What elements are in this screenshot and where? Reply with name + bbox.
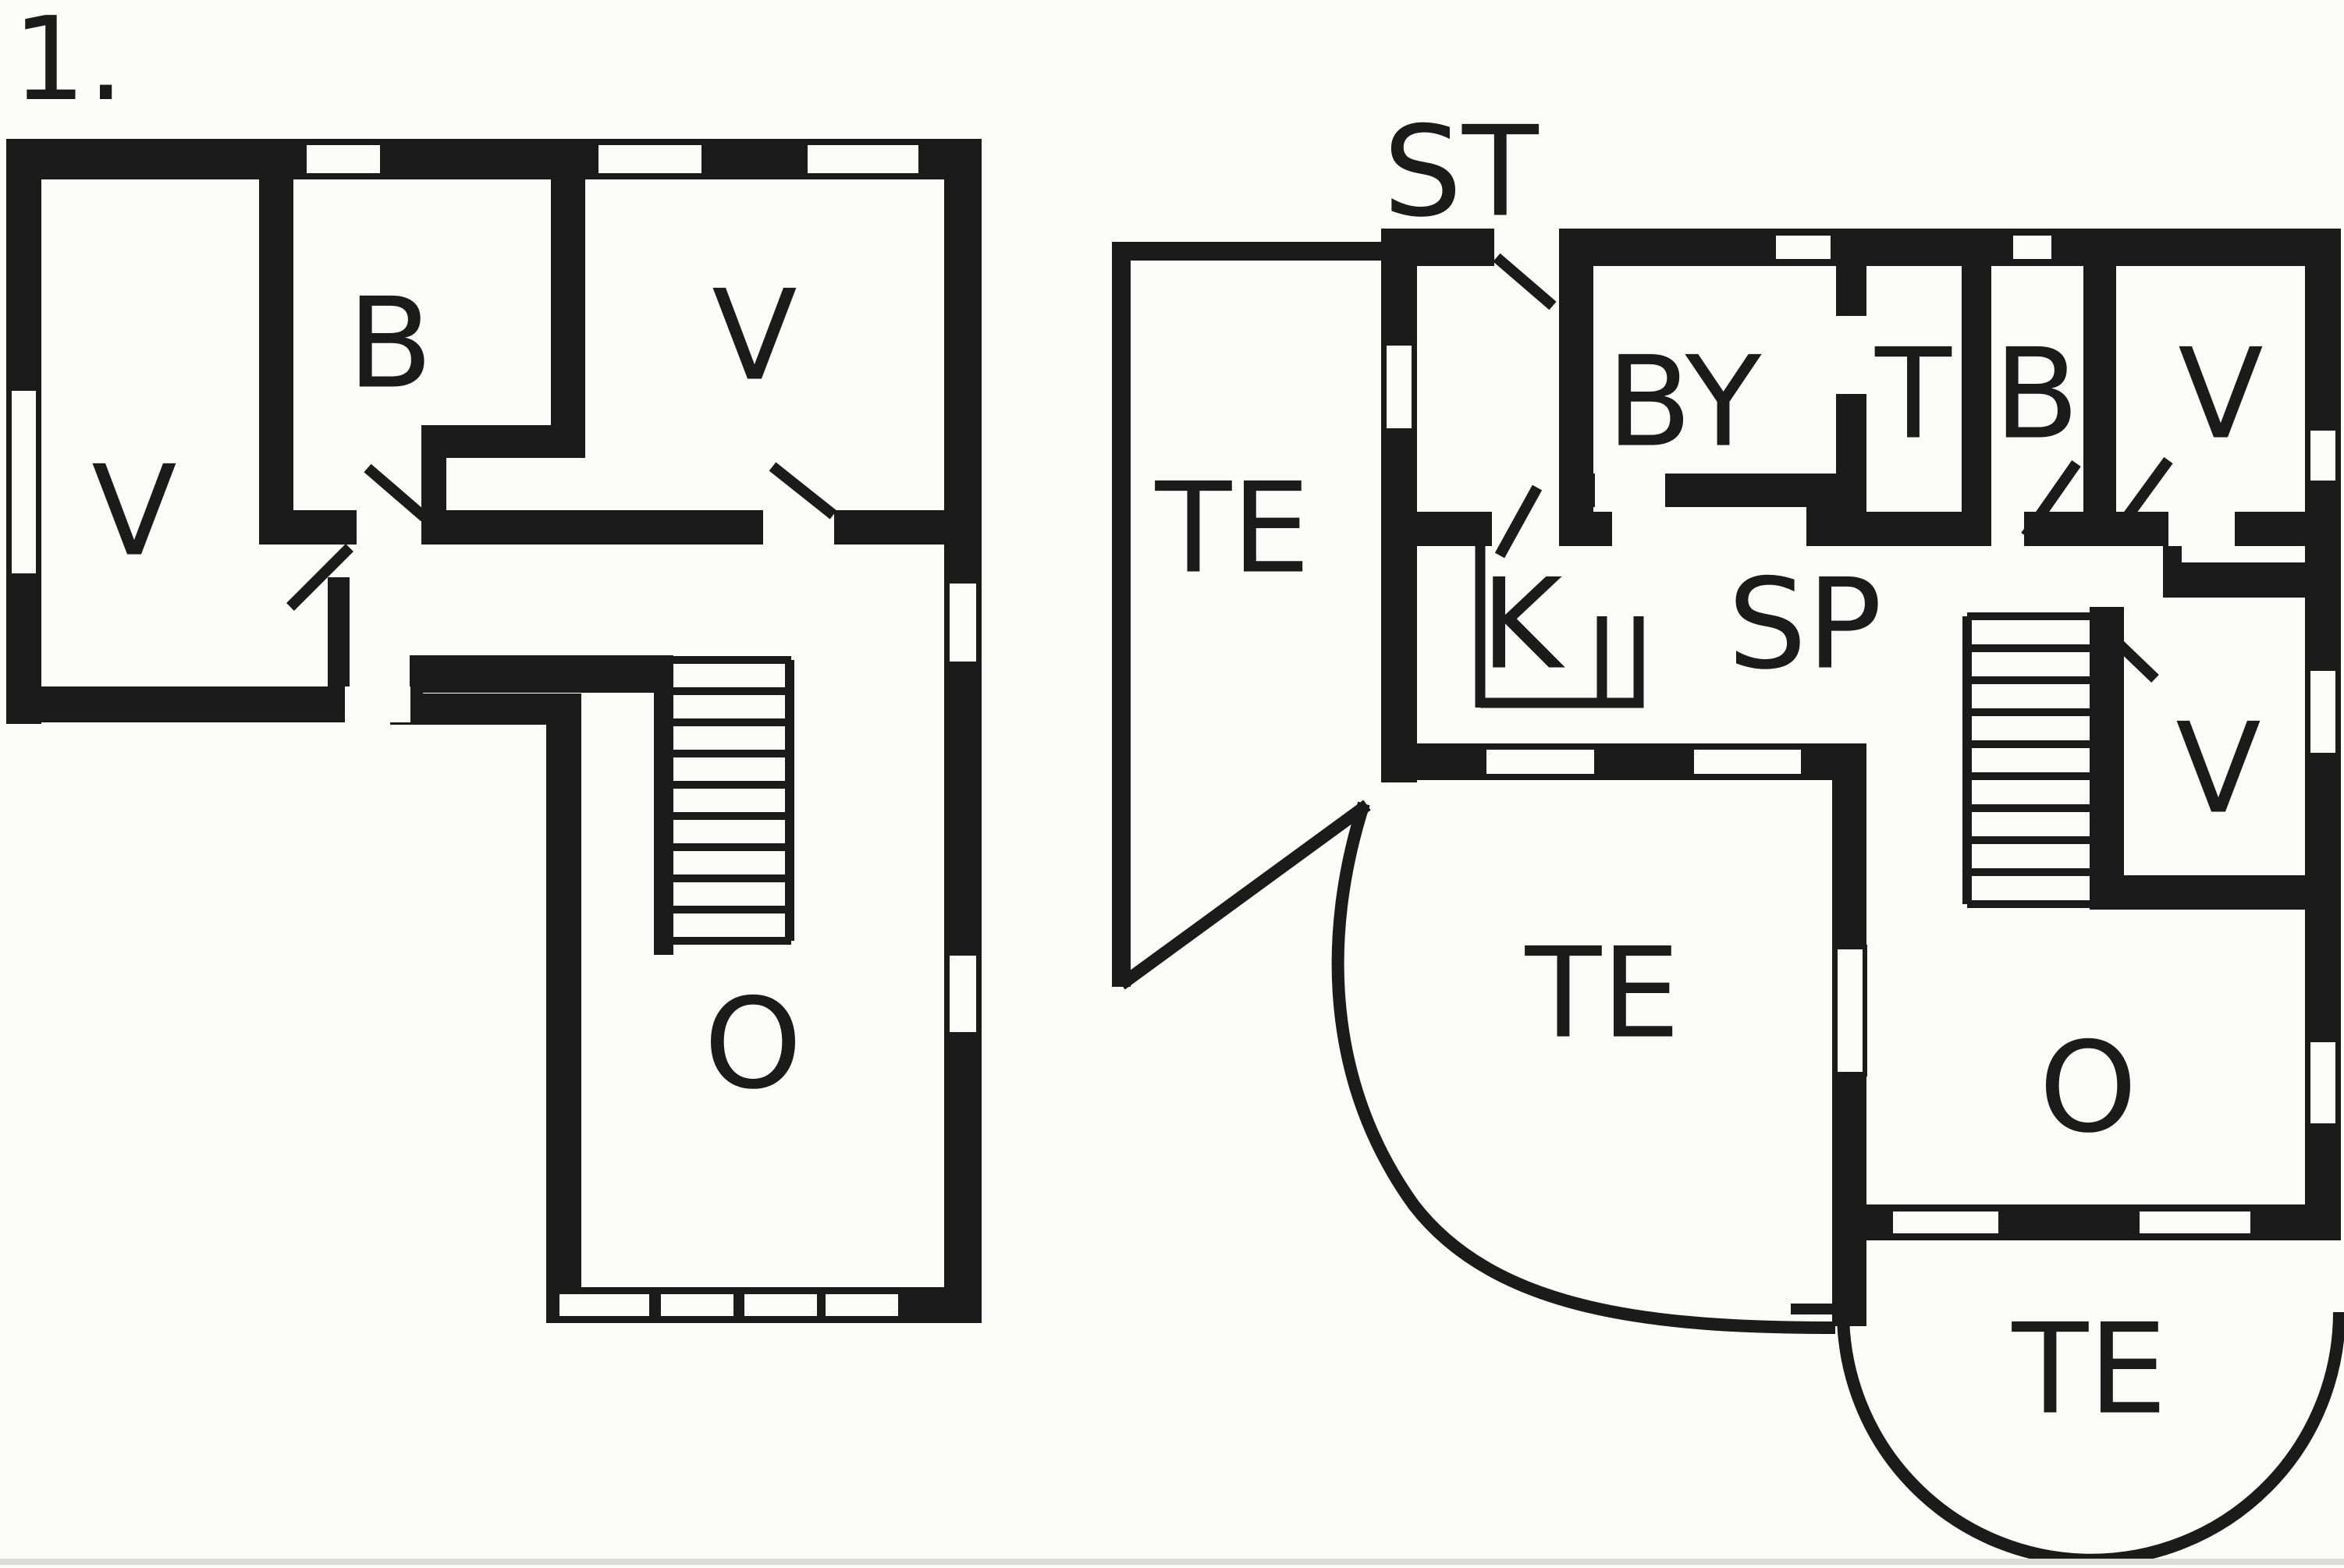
first-floor-plan-room-label-V: V — [91, 438, 176, 584]
first-floor-plan-door-swing — [368, 468, 424, 517]
first-floor-plan-wall — [390, 694, 557, 725]
ground-floor-plan-room-label-V: V — [2178, 321, 2263, 467]
ground-floor-plan-door-opening — [1991, 512, 2024, 546]
first-floor-plan-window — [557, 1292, 652, 1318]
first-floor-plan-window — [947, 581, 978, 664]
ground-floor-plan-window — [1774, 233, 1833, 261]
first-floor-plan-window — [805, 143, 921, 176]
ground-floor-plan-window — [1484, 747, 1596, 776]
ground-floor-plan-thin-wall-line — [1121, 805, 1367, 984]
ground-floor-plan-window — [2137, 1209, 2253, 1236]
ground-floor-plan-room-label-O: O — [2039, 1015, 2137, 1161]
ground-floor-plan-window — [2308, 1040, 2338, 1126]
ground-floor-plan-window — [1384, 343, 1414, 431]
ground-floor-plan-wall — [1962, 266, 1991, 512]
floorplan-drawing: VBVOSTBYTBVTEKSPVTEOTE — [0, 0, 2344, 1565]
ground-floor-plan-room-label-TE: TE — [1525, 921, 1681, 1066]
first-floor-plan-wall — [259, 510, 357, 545]
first-floor-plan-wall — [551, 176, 585, 458]
first-floor-plan-window — [596, 143, 704, 176]
ground-floor-plan-door-opening — [2168, 512, 2235, 546]
ground-floor-plan-room-label-TE: TE — [1155, 456, 1311, 601]
first-floor-plan-wall — [834, 510, 944, 545]
ground-floor-plan-window — [2308, 428, 2338, 483]
first-floor-plan-room-label-O: O — [704, 971, 802, 1117]
ground-floor-plan-door-opening — [1595, 474, 1665, 507]
scan-edge-artifact — [0, 1559, 2344, 1565]
ground-floor-plan-door-swing — [1500, 488, 1537, 555]
ground-floor-plan-wall — [2163, 562, 2305, 598]
ground-floor-plan-wall — [1832, 512, 2341, 546]
ground-floor-plan-room-label-V: V — [2175, 696, 2261, 842]
first-floor-plan-window — [947, 953, 978, 1034]
first-floor-plan-window — [742, 1292, 819, 1318]
first-floor-plan-door-opening — [345, 686, 410, 722]
first-floor-plan-wall — [944, 139, 982, 1323]
first-floor-plan-window — [659, 1292, 736, 1318]
first-floor-plan-door-swing — [772, 466, 833, 515]
first-floor-plan-wall — [410, 655, 673, 693]
ground-floor-plan-room-label-SP: SP — [1728, 552, 1882, 697]
first-floor-plan-wall — [421, 425, 446, 545]
ground-floor-plan-room-label-B: B — [1994, 321, 2079, 467]
ground-floor-plan-window — [1891, 1209, 2001, 1236]
ground-floor-plan-wall — [2090, 875, 2341, 910]
ground-floor-plan-wall — [1381, 229, 1417, 782]
ground-floor-plan-wall — [1559, 266, 1593, 516]
first-floor-plan-wall — [585, 510, 763, 545]
ground-floor-plan-boundary-curve — [1602, 616, 1639, 703]
first-floor-plan-room-label-B: B — [347, 271, 433, 417]
floorplan-canvas: VBVOSTBYTBVTEKSPVTEOTE — [0, 0, 2344, 1565]
first-floor-plan-room-label-V: V — [712, 263, 797, 409]
ground-floor-plan-wall — [2083, 266, 2116, 512]
first-floor-plan-wall — [546, 694, 581, 1323]
ground-floor-plan-window — [1692, 747, 1803, 776]
ground-floor-plan-window — [1835, 947, 1865, 1074]
ground-floor-plan-wall — [1559, 512, 1612, 546]
ground-floor-plan-wall — [2090, 607, 2124, 906]
first-floor-plan-wall — [654, 655, 673, 955]
first-floor-plan-window — [9, 388, 38, 576]
ground-floor-plan-wall — [1381, 512, 1492, 546]
ground-floor-plan-room-label-T: T — [1874, 321, 1952, 467]
ground-floor-plan-room-label-K: K — [1481, 552, 1566, 697]
first-floor-plan-wall — [259, 179, 293, 538]
ground-floor-plan-room-label-TE: TE — [2012, 1297, 2168, 1442]
ground-floor-plan-room-label-BY: BY — [1607, 329, 1763, 475]
first-floor-plan-window — [304, 143, 382, 176]
first-floor-plan-window — [823, 1292, 900, 1318]
ground-floor-plan-door-opening — [1836, 316, 1866, 394]
ground-floor-plan-window — [2011, 233, 2054, 261]
ground-floor-plan-room-label-ST: ST — [1383, 99, 1540, 245]
first-floor-plan-wall — [328, 577, 350, 688]
ground-floor-plan-window — [2308, 669, 2338, 755]
first-floor-plan-wall — [424, 510, 585, 545]
